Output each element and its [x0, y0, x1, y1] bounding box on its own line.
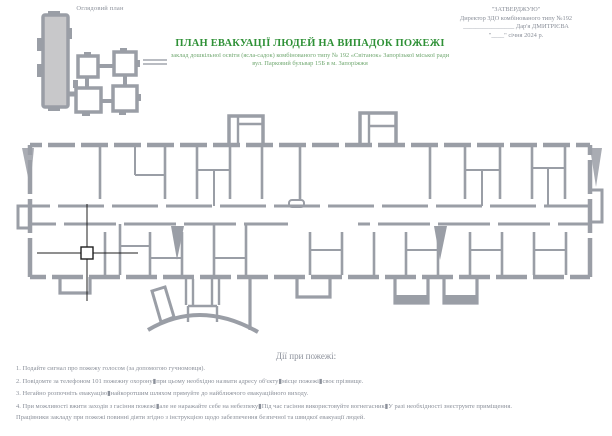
page-subtitle-line1: заклад дошкільної освіти (ясла-садок) ко… — [140, 52, 480, 59]
evacuation-plan-document: Оглядовий план — [0, 0, 612, 436]
minimap-annex-cluster — [68, 48, 141, 116]
title-block: ПЛАН ЕВАКУАЦІЇ ЛЮДЕЙ НА ВИПАДОК ПОЖЕЖІ з… — [140, 38, 480, 67]
actions-list: 1. Подайте сигнал про пожежу голосом (за… — [16, 365, 608, 426]
approval-line2: Директор ЗДО комбінованого типу №192 — [426, 15, 606, 24]
overview-minimap — [18, 10, 158, 120]
building-corridor-walls — [32, 206, 588, 224]
action-item-2: 2. Повідомте за телефоном 101 пожежну ох… — [16, 377, 608, 385]
crosshair-cursor — [37, 204, 138, 301]
approval-line4: "____" січня 2024 р. — [426, 32, 606, 41]
approval-line3: ________________ Дар'я ДМИТРІЄВА — [426, 23, 606, 32]
entrance-porches-bottom — [60, 277, 477, 303]
action-item-4: 4. При можливості вжити заходів з гасінн… — [16, 402, 608, 410]
actions-title: Дії при пожежі: — [0, 351, 612, 361]
action-item-3: 3. Негайно розпочніть евакуацію▮найкорот… — [16, 389, 608, 397]
approval-block: "ЗАТВЕРДЖУЮ" Директор ЗДО комбінованого … — [426, 6, 606, 40]
stairwell-protrusions-top — [229, 113, 396, 145]
action-item-5: Працівники закладу при пожежі повинні ді… — [16, 414, 608, 421]
building-room-partitions-top — [100, 147, 565, 207]
floor-plan — [0, 108, 612, 356]
main-entrance-canopy — [148, 277, 258, 332]
action-item-1: 1. Подайте сигнал про пожежу голосом (за… — [16, 365, 608, 372]
approval-line1: "ЗАТВЕРДЖУЮ" — [426, 6, 606, 15]
page-subtitle-line2: вул. Парковий бульвар 15Б в м. Запоріжжя — [140, 60, 480, 67]
minimap-main-building — [37, 11, 72, 111]
